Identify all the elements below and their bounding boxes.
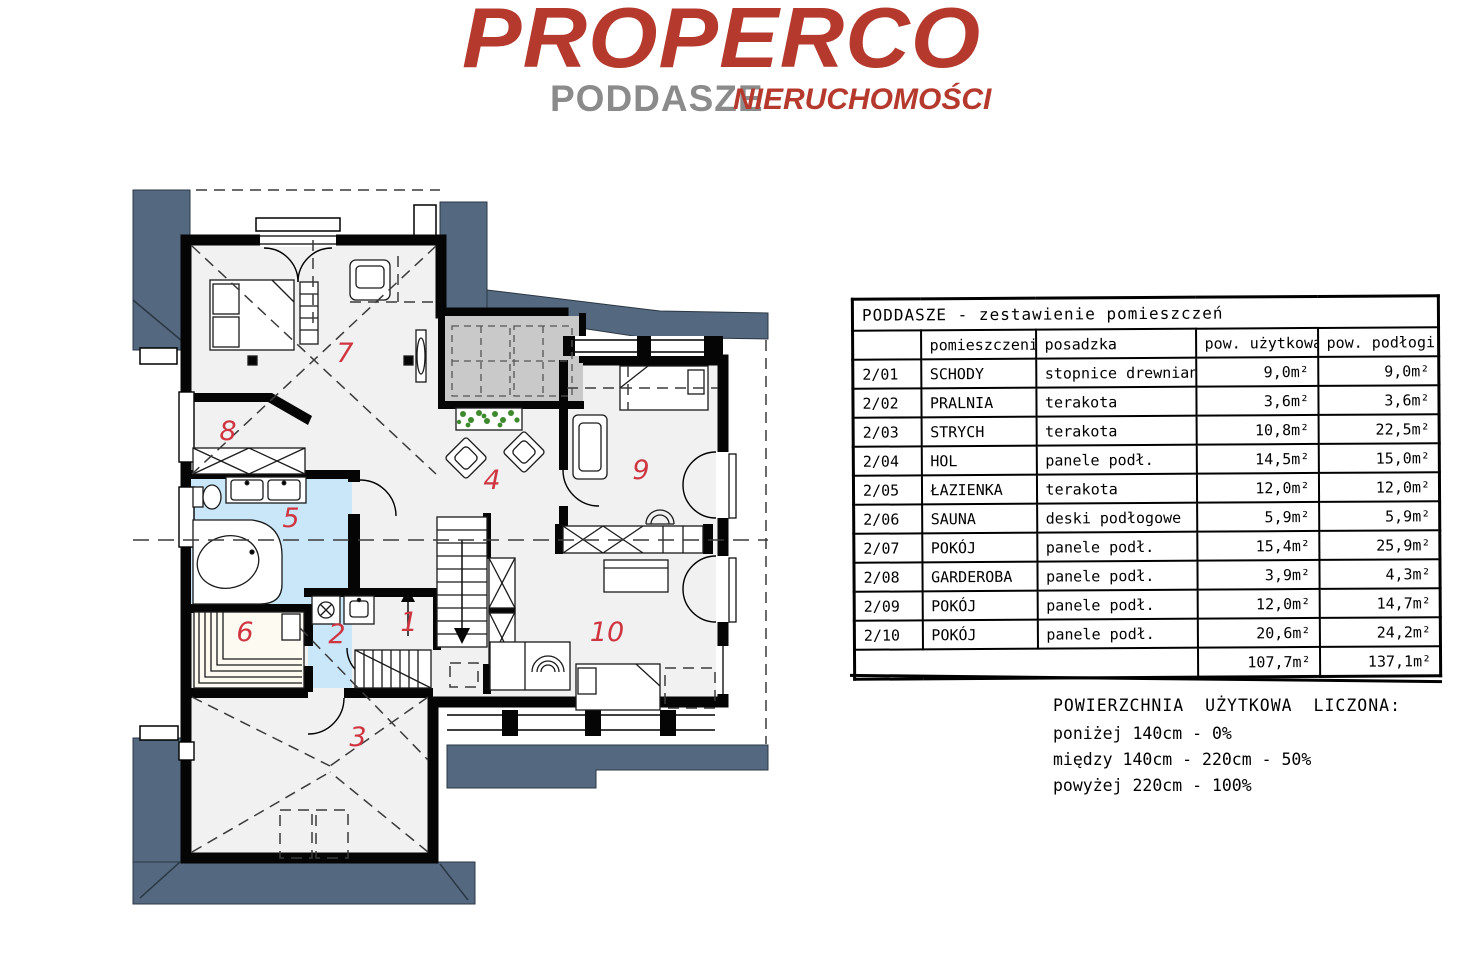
room-label-3: 3 [349, 722, 366, 753]
total-floor-area: 137,1m² [1319, 646, 1440, 676]
room-label-4: 4 [483, 465, 500, 496]
cell-floor: panele podł. [1037, 619, 1197, 649]
cell-room: SAUNA [922, 504, 1037, 534]
cell-floor: deski podłogowe [1037, 503, 1197, 533]
cell-usable: 5,9m² [1197, 502, 1319, 532]
cell-id: 2/02 [853, 388, 921, 417]
header-id [853, 330, 921, 359]
cell-floor: terakota [1036, 387, 1196, 417]
cell-total: 22,5m² [1318, 414, 1439, 444]
cell-room: POKÓJ [922, 533, 1037, 563]
cell-usable: 15,4m² [1197, 531, 1319, 561]
cell-total: 9,0m² [1318, 356, 1439, 386]
cell-room: ŁAZIENKA [921, 475, 1036, 505]
cell-floor: terakota [1036, 416, 1196, 446]
table-row: 2/07POKÓJpanele podł.15,4m²25,9m² [854, 530, 1440, 563]
cell-room: GARDEROBA [922, 562, 1037, 592]
cell-room: POKÓJ [922, 620, 1037, 650]
cell-total: 14,7m² [1319, 588, 1440, 618]
cell-room: HOL [921, 446, 1036, 476]
rug-room7 [300, 282, 318, 344]
cell-room: PRALNIA [921, 388, 1036, 418]
cell-usable: 20,6m² [1197, 618, 1319, 648]
cell-usable: 3,9m² [1197, 560, 1319, 590]
notes-line-1: poniżej 140cm - 0% [1053, 721, 1401, 747]
logo-brand: PROPERCO [462, 0, 981, 88]
table-row: 2/03STRYCHterakota10,8m²22,5m² [853, 414, 1439, 447]
cell-total: 3,6m² [1318, 385, 1439, 415]
cell-room: STRYCH [921, 417, 1036, 447]
room-label-5: 5 [282, 503, 299, 534]
cell-id: 2/03 [853, 417, 921, 446]
corner-bathtub [192, 520, 282, 604]
bed-room10 [576, 664, 660, 710]
sink-laundry [344, 596, 374, 624]
floorplan-sheet: 1 2 3 4 5 6 7 8 9 10 PROPERCO PODDASZE N… [0, 0, 1480, 980]
cell-floor: panele podł. [1037, 532, 1197, 562]
header-floor-area: pow. podłogi [1318, 327, 1439, 357]
table-title: PODDASZE - zestawienie pomieszczeń [852, 296, 1438, 331]
cell-floor: stopnice drewniane [1036, 358, 1196, 388]
cell-usable: 12,0m² [1196, 473, 1318, 503]
cell-id: 2/09 [854, 591, 922, 620]
table-row: 2/02PRALNIAterakota3,6m²3,6m² [853, 385, 1439, 418]
area-calculation-notes: POWIERZCHNIA UŻYTKOWA LICZONA: poniżej 1… [1053, 693, 1401, 799]
cell-total: 24,2m² [1319, 617, 1440, 647]
sofa-room9 [573, 415, 607, 479]
sofa-room10 [604, 560, 668, 592]
stairs-main [437, 517, 487, 647]
sink-counter-bath [226, 477, 306, 503]
notes-line-2: między 140cm - 220cm - 50% [1053, 747, 1401, 773]
bed-room7 [210, 280, 294, 350]
table-row: 2/08GARDEROBApanele podł.3,9m²4,3m² [854, 559, 1440, 592]
room-schedule-table: PODDASZE - zestawienie pomieszczeń pomie… [851, 294, 1439, 681]
cell-id: 2/06 [854, 504, 922, 533]
cell-id: 2/08 [854, 562, 922, 591]
table-row: 2/09POKÓJpanele podł.12,0m²14,7m² [854, 588, 1440, 621]
cell-total: 12,0m² [1318, 472, 1439, 502]
table-row: 2/04HOLpanele podł.14,5m²15,0m² [853, 443, 1439, 476]
header-room: pomieszczenie [921, 330, 1036, 360]
table-row: 2/01SCHODYstopnice drewniane9,0m²9,0m² [853, 356, 1439, 389]
cell-floor: panele podł. [1036, 445, 1196, 475]
logo-subbrand: NIERUCHOMOŚCI [733, 83, 991, 117]
cell-total: 15,0m² [1318, 443, 1439, 473]
cell-floor: terakota [1036, 474, 1196, 504]
header-usable-area: pow. użytkowa [1196, 328, 1318, 358]
room-label-2: 2 [328, 619, 345, 650]
stairs-lower-flight [355, 650, 431, 688]
notes-line-3: powyżej 220cm - 100% [1053, 773, 1401, 799]
room-label-6: 6 [236, 617, 253, 648]
total-usable-area: 107,7m² [1197, 647, 1319, 677]
cell-room: POKÓJ [922, 591, 1037, 621]
room-label-7: 7 [336, 338, 353, 369]
toilet-bath [193, 485, 221, 509]
room-label-8: 8 [219, 416, 236, 447]
cell-usable: 14,5m² [1196, 444, 1318, 474]
cell-id: 2/10 [854, 620, 922, 649]
room-label-10: 10 [590, 617, 624, 648]
table-row: 2/06SAUNAdeski podłogowe5,9m²5,9m² [854, 501, 1440, 534]
cell-id: 2/04 [853, 446, 921, 475]
room-label-1: 1 [400, 607, 417, 638]
cell-floor: panele podł. [1037, 590, 1197, 620]
cell-usable: 9,0m² [1196, 357, 1318, 387]
cell-total: 4,3m² [1319, 559, 1440, 589]
notes-title: POWIERZCHNIA UŻYTKOWA LICZONA: [1053, 693, 1401, 719]
cell-id: 2/05 [853, 475, 921, 504]
armchair-room7 [350, 260, 390, 300]
cell-total: 5,9m² [1319, 501, 1440, 531]
cell-floor: panele podł. [1037, 561, 1197, 591]
wardrobe-room8 [193, 448, 305, 474]
header-floor: posadzka [1036, 329, 1196, 359]
room-label-9: 9 [632, 455, 649, 486]
table-header-row: pomieszczenie posadzka pow. użytkowa pow… [853, 327, 1439, 360]
cell-usable: 3,6m² [1196, 386, 1318, 416]
mirror-room7 [416, 330, 426, 382]
floor-title: PODDASZE [550, 78, 764, 120]
cell-id: 2/01 [853, 359, 921, 388]
cell-room: SCHODY [921, 359, 1036, 389]
cell-usable: 12,0m² [1197, 589, 1319, 619]
table-row: 2/10POKÓJpanele podł.20,6m²24,2m² [854, 617, 1440, 650]
planter-hall [456, 408, 522, 430]
cell-id: 2/07 [854, 533, 922, 562]
table-row: 2/05ŁAZIENKAterakota12,0m²12,0m² [853, 472, 1439, 505]
cell-total: 25,9m² [1319, 530, 1440, 560]
cell-usable: 10,8m² [1196, 415, 1318, 445]
